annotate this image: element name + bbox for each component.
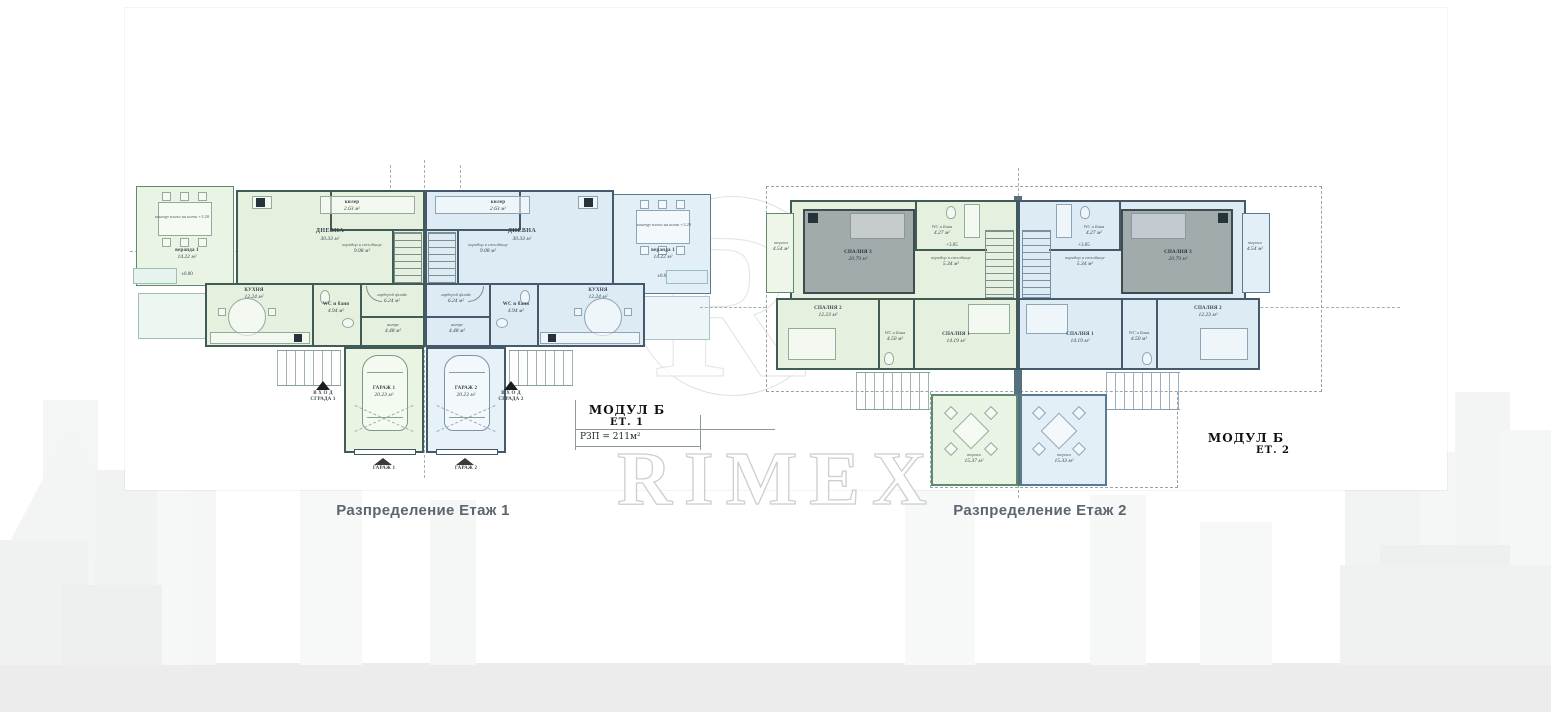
f2-unit2-side-terrace (1242, 213, 1270, 293)
toilet (1080, 206, 1090, 219)
room-label: WC и Баня 4.27 м² (918, 224, 966, 237)
toilet (884, 352, 894, 365)
railing-hatch (856, 372, 930, 410)
floor2-plan: тераса 4.54 м² СПАЛНЯ 3 20.79 м² WC и Ба… (0, 0, 1551, 712)
room-label: тераса 4.54 м² (762, 240, 800, 253)
room-label: WC и Баня 4.50 м² (1118, 330, 1160, 343)
staircase (985, 230, 1014, 298)
room-label: WC и Баня 4.27 м² (1070, 224, 1118, 237)
room-label: коридор и стълбище 5.34 м² (1056, 255, 1114, 268)
room-label: СПАЛНЯ 2 12.23 м² (1180, 306, 1236, 319)
bed (1200, 328, 1248, 360)
caption-floor2: Разпределение Етаж 2 (940, 502, 1140, 519)
room-label: СПАЛНЯ 3 20.79 м² (826, 250, 890, 263)
bed (968, 304, 1010, 334)
wall (1119, 200, 1121, 250)
toilet (946, 206, 956, 219)
caption-floor1: Разпределение Етаж 1 (323, 502, 523, 519)
room-label: СПАЛНЯ 1 14.19 м² (928, 332, 984, 345)
room-label: коридор и стълбище 5.34 м² (922, 255, 980, 268)
bathtub (964, 204, 980, 238)
bed (1131, 213, 1186, 239)
module-title-floor2: МОДУЛ Б ЕТ. 2 (1196, 431, 1296, 456)
level-mark: +3.05 (1070, 243, 1098, 249)
room-label: СПАЛНЯ 2 12.23 м² (800, 306, 856, 319)
staircase (1022, 230, 1051, 298)
closet-icon (808, 213, 818, 223)
room-label: СПАЛНЯ 3 20.79 м² (1146, 250, 1210, 263)
rimex-watermark: RIMEX (598, 436, 958, 523)
room-label: тераса 15.33 м² (1038, 452, 1090, 465)
ref-line (700, 307, 766, 308)
ref-line (1240, 307, 1400, 308)
toilet (1142, 352, 1152, 365)
bed (850, 213, 905, 239)
bed (788, 328, 836, 360)
closet-icon (1218, 213, 1228, 223)
floorplan-page: R контур плоча на кота +3.20 веранда 1 1… (0, 0, 1551, 712)
room-label: тераса 4.54 м² (1236, 240, 1274, 253)
bed (1026, 304, 1068, 334)
railing-hatch (1106, 372, 1180, 410)
room-label: WC и Баня 4.50 м² (874, 330, 916, 343)
wall (915, 200, 917, 250)
f2-unit1-side-terrace (766, 213, 794, 293)
level-mark: +3.05 (938, 243, 966, 249)
room-label: СПАЛНЯ 1 14.19 м² (1052, 332, 1108, 345)
